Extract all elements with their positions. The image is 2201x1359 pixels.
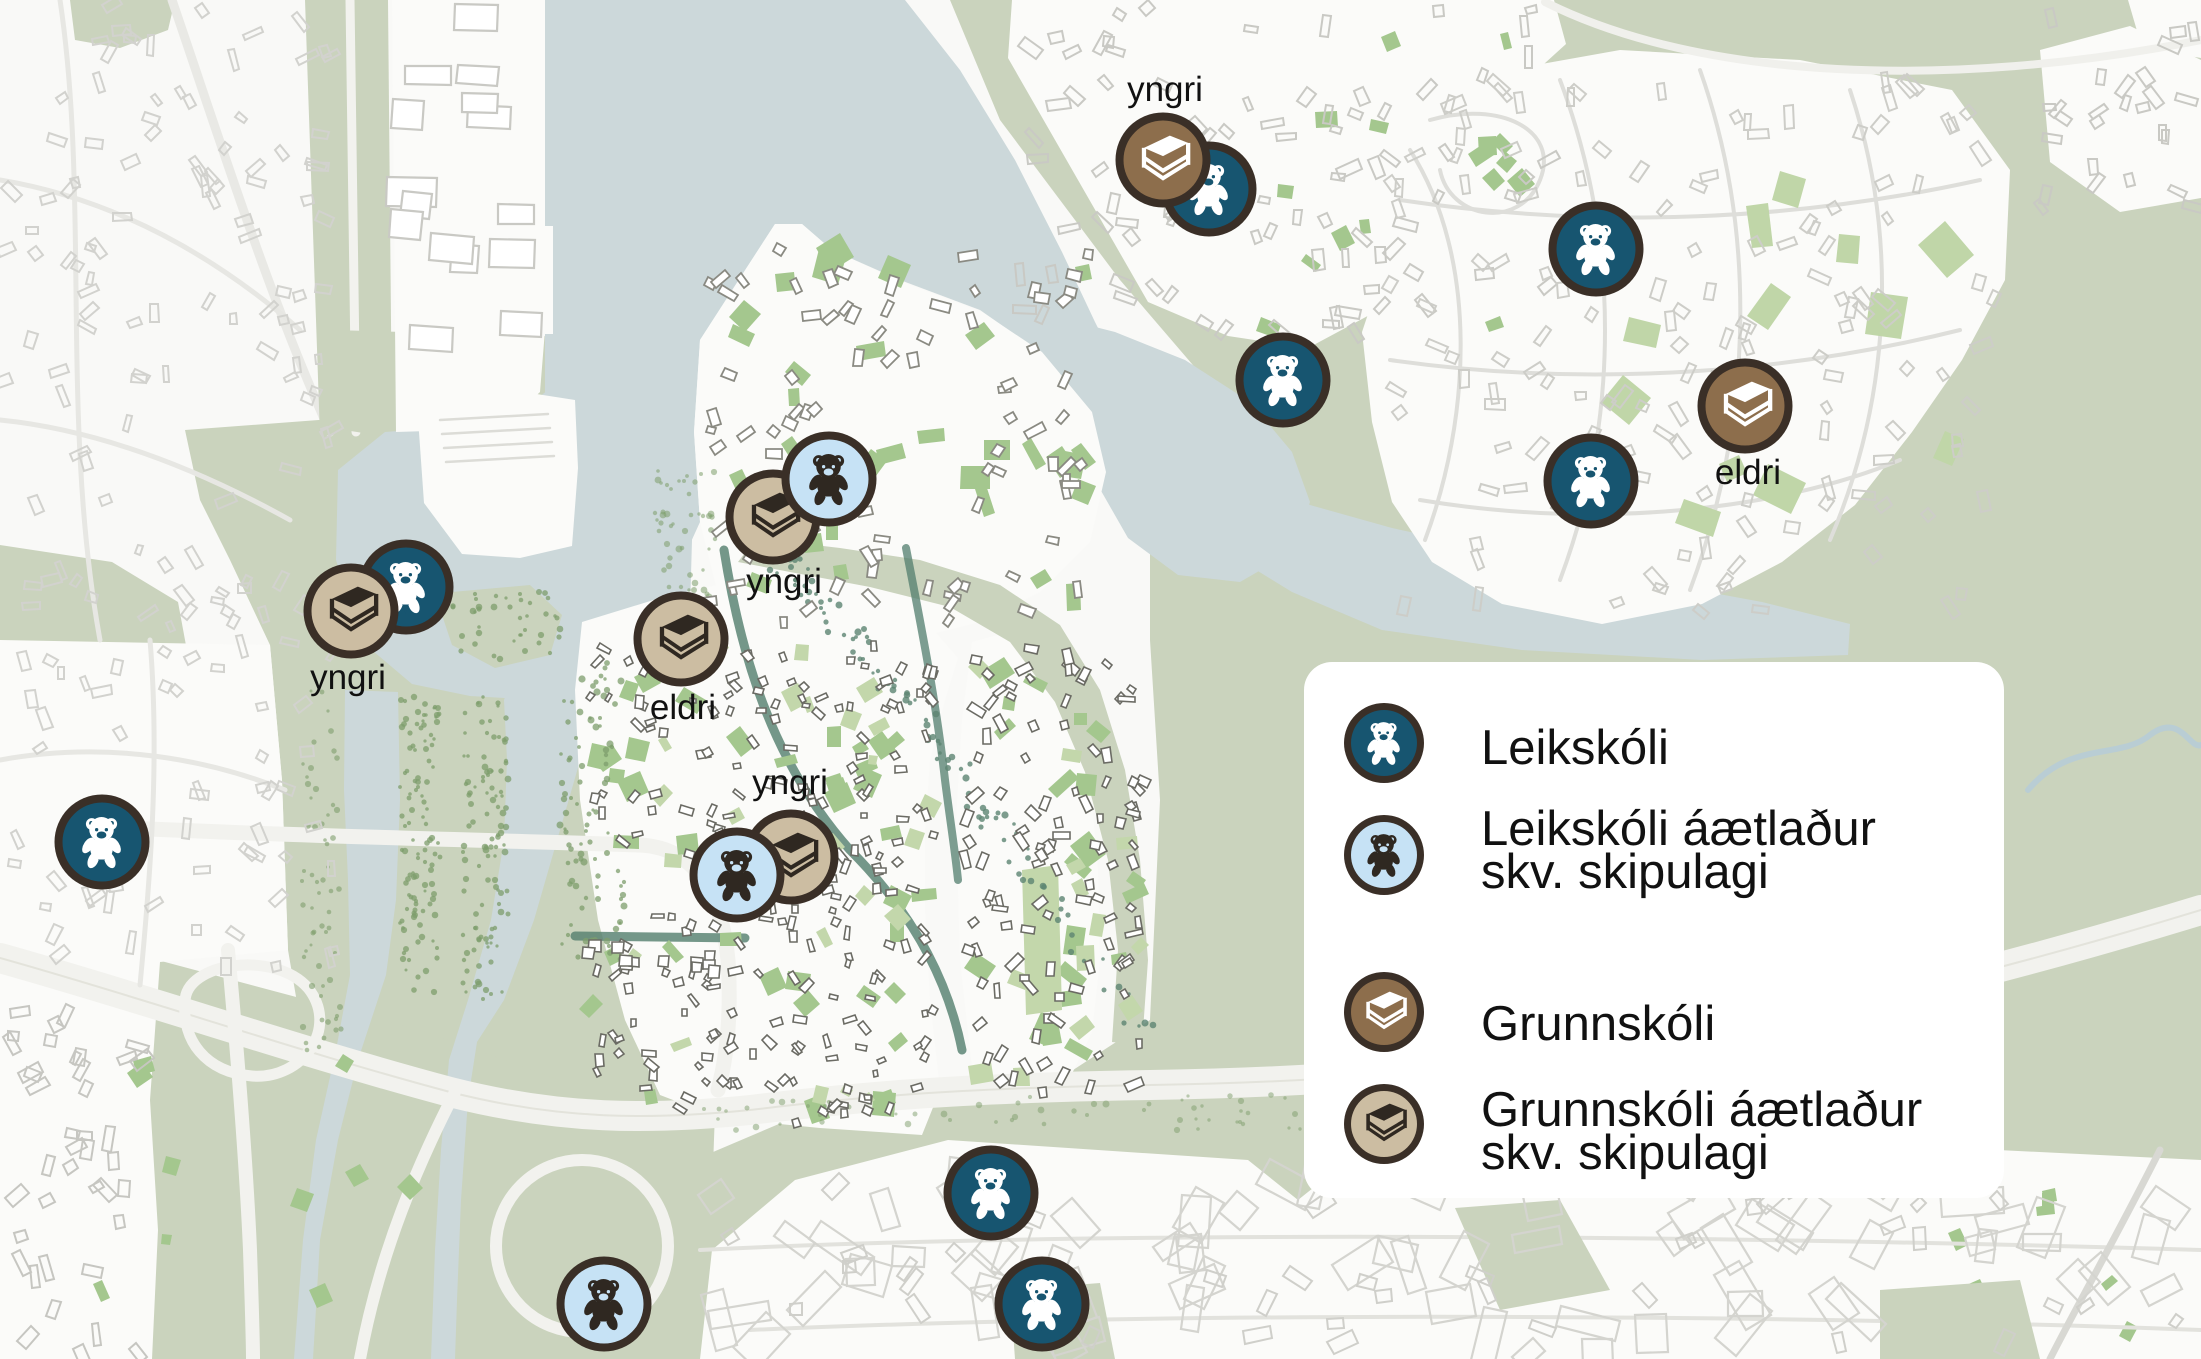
- svg-text:skv. skipulagi: skv. skipulagi: [1481, 845, 1769, 899]
- svg-text:yngri: yngri: [752, 763, 828, 802]
- svg-text:eldri: eldri: [650, 688, 716, 727]
- svg-text:eldri: eldri: [1715, 453, 1781, 492]
- svg-text:yngri: yngri: [310, 658, 386, 697]
- svg-text:yngri: yngri: [746, 562, 822, 601]
- svg-text:skv. skipulagi: skv. skipulagi: [1481, 1126, 1769, 1180]
- svg-text:Leikskóli: Leikskóli: [1481, 721, 1669, 775]
- svg-text:yngri: yngri: [1127, 70, 1203, 109]
- svg-text:Grunnskóli: Grunnskóli: [1481, 997, 1715, 1051]
